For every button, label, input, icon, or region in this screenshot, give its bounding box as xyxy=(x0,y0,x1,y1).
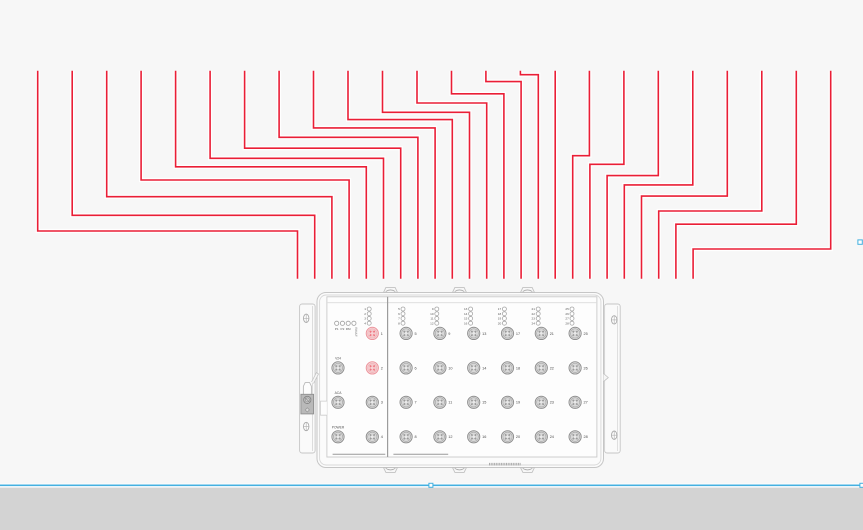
svg-text:P1: P1 xyxy=(335,327,339,331)
svg-text:18: 18 xyxy=(498,312,502,316)
svg-text:7: 7 xyxy=(415,401,417,405)
svg-text:20: 20 xyxy=(516,435,520,439)
svg-text:P2: P2 xyxy=(341,327,345,331)
svg-text:17: 17 xyxy=(498,307,502,311)
svg-text:ACA: ACA xyxy=(335,391,343,395)
svg-text:19: 19 xyxy=(498,317,502,321)
svg-text:5: 5 xyxy=(398,307,400,311)
svg-text:27: 27 xyxy=(584,401,588,405)
svg-text:22: 22 xyxy=(550,366,554,370)
svg-text:FAULT: FAULT xyxy=(354,327,358,337)
svg-text:13: 13 xyxy=(464,307,468,311)
svg-text:2: 2 xyxy=(381,366,383,370)
svg-text:5: 5 xyxy=(415,332,417,336)
svg-text:28: 28 xyxy=(565,321,569,325)
svg-text:10: 10 xyxy=(430,312,434,316)
svg-text:12: 12 xyxy=(448,435,452,439)
svg-text:16: 16 xyxy=(482,435,486,439)
svg-text:14: 14 xyxy=(482,366,486,370)
svg-text:12: 12 xyxy=(430,321,434,325)
svg-text:7: 7 xyxy=(398,317,400,321)
svg-text:4: 4 xyxy=(381,435,383,439)
svg-text:16: 16 xyxy=(464,321,468,325)
svg-text:19: 19 xyxy=(516,401,520,405)
svg-text:24: 24 xyxy=(532,321,536,325)
svg-text:18: 18 xyxy=(516,366,520,370)
svg-text:28: 28 xyxy=(584,435,588,439)
svg-text:9: 9 xyxy=(448,332,450,336)
svg-text:26: 26 xyxy=(584,366,588,370)
svg-text:24: 24 xyxy=(550,435,554,439)
svg-text:4: 4 xyxy=(364,321,366,325)
svg-text:17: 17 xyxy=(516,332,520,336)
svg-text:3: 3 xyxy=(381,401,383,405)
svg-text:15: 15 xyxy=(464,317,468,321)
svg-text:3: 3 xyxy=(364,317,366,321)
svg-text:RM: RM xyxy=(346,327,351,331)
svg-text:1: 1 xyxy=(381,332,383,336)
svg-text:13: 13 xyxy=(482,332,486,336)
svg-text:6: 6 xyxy=(415,366,417,370)
svg-text:25: 25 xyxy=(584,332,588,336)
svg-text:22: 22 xyxy=(532,312,536,316)
svg-text:14: 14 xyxy=(464,312,468,316)
svg-text:V24: V24 xyxy=(335,357,341,361)
svg-text:21: 21 xyxy=(550,332,554,336)
svg-text:POWER: POWER xyxy=(332,426,345,430)
svg-text:10: 10 xyxy=(448,366,452,370)
svg-text:2: 2 xyxy=(364,312,366,316)
svg-text:23: 23 xyxy=(532,317,536,321)
svg-text:11: 11 xyxy=(430,317,433,321)
svg-text:27: 27 xyxy=(565,317,569,321)
svg-text:20: 20 xyxy=(498,321,502,325)
svg-text:8: 8 xyxy=(398,321,400,325)
svg-text:26: 26 xyxy=(565,312,569,316)
svg-text:8: 8 xyxy=(415,435,417,439)
svg-text:6: 6 xyxy=(398,312,400,316)
svg-text:23: 23 xyxy=(550,401,554,405)
svg-text:15: 15 xyxy=(482,401,486,405)
svg-text:11: 11 xyxy=(448,401,452,405)
svg-text:1: 1 xyxy=(364,307,366,311)
svg-text:25: 25 xyxy=(565,307,569,311)
svg-text:21: 21 xyxy=(532,307,536,311)
svg-text:9: 9 xyxy=(432,307,434,311)
